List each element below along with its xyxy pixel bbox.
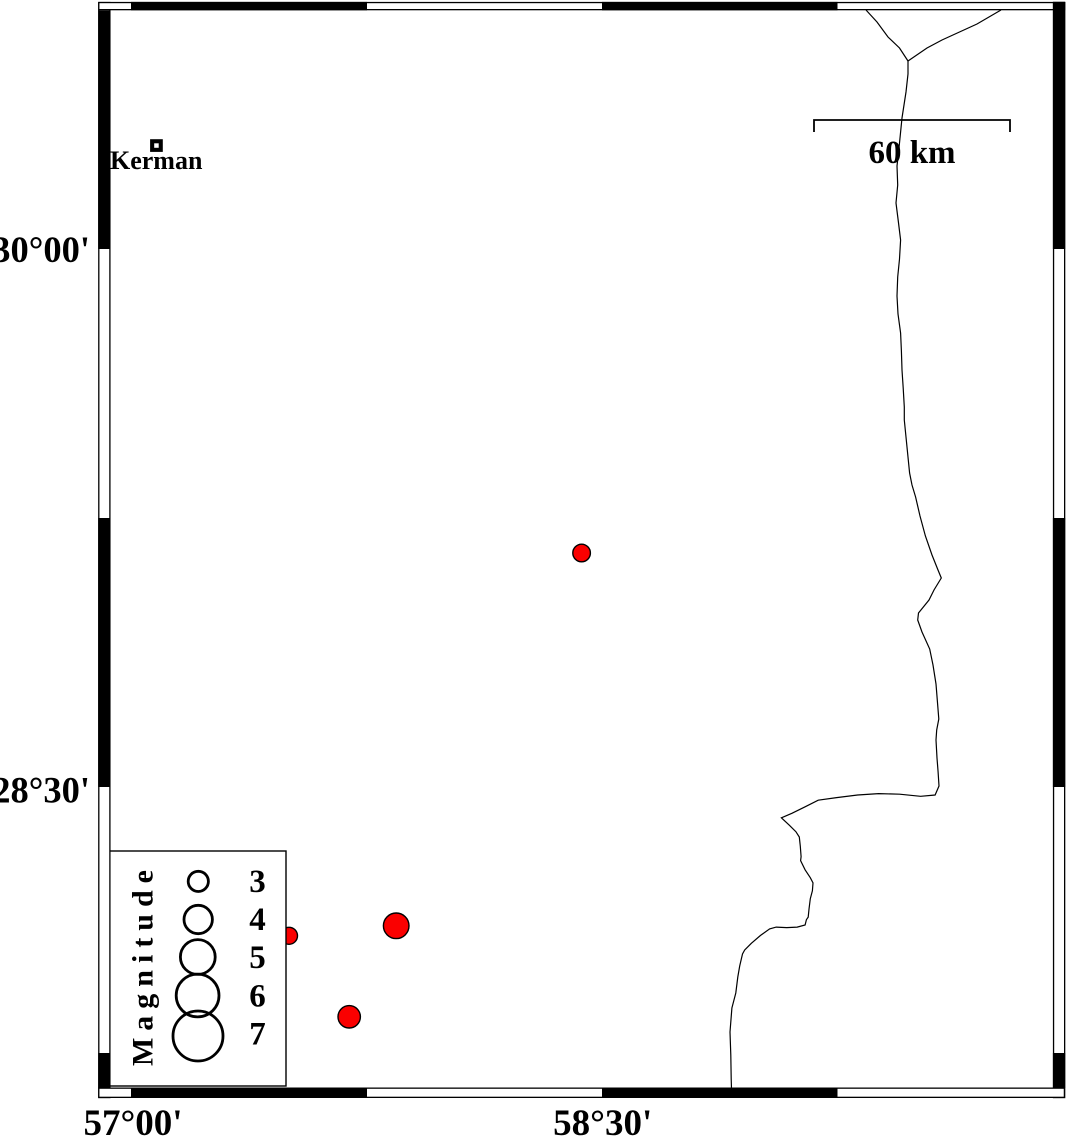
svg-text:6: 6 [249,979,266,1015]
svg-text:28°30': 28°30' [0,770,90,811]
svg-text:58°30': 58°30' [553,1103,652,1136]
svg-text:57°00': 57°00' [83,1103,182,1136]
svg-text:4: 4 [249,902,266,938]
svg-text:60 km: 60 km [868,135,955,171]
svg-text:Kerman: Kerman [110,146,203,175]
svg-text:7: 7 [249,1017,266,1053]
svg-text:Magnitude: Magnitude [127,863,160,1066]
svg-text:30°00': 30°00' [0,229,90,270]
svg-text:5: 5 [249,940,266,976]
svg-text:3: 3 [249,864,266,900]
